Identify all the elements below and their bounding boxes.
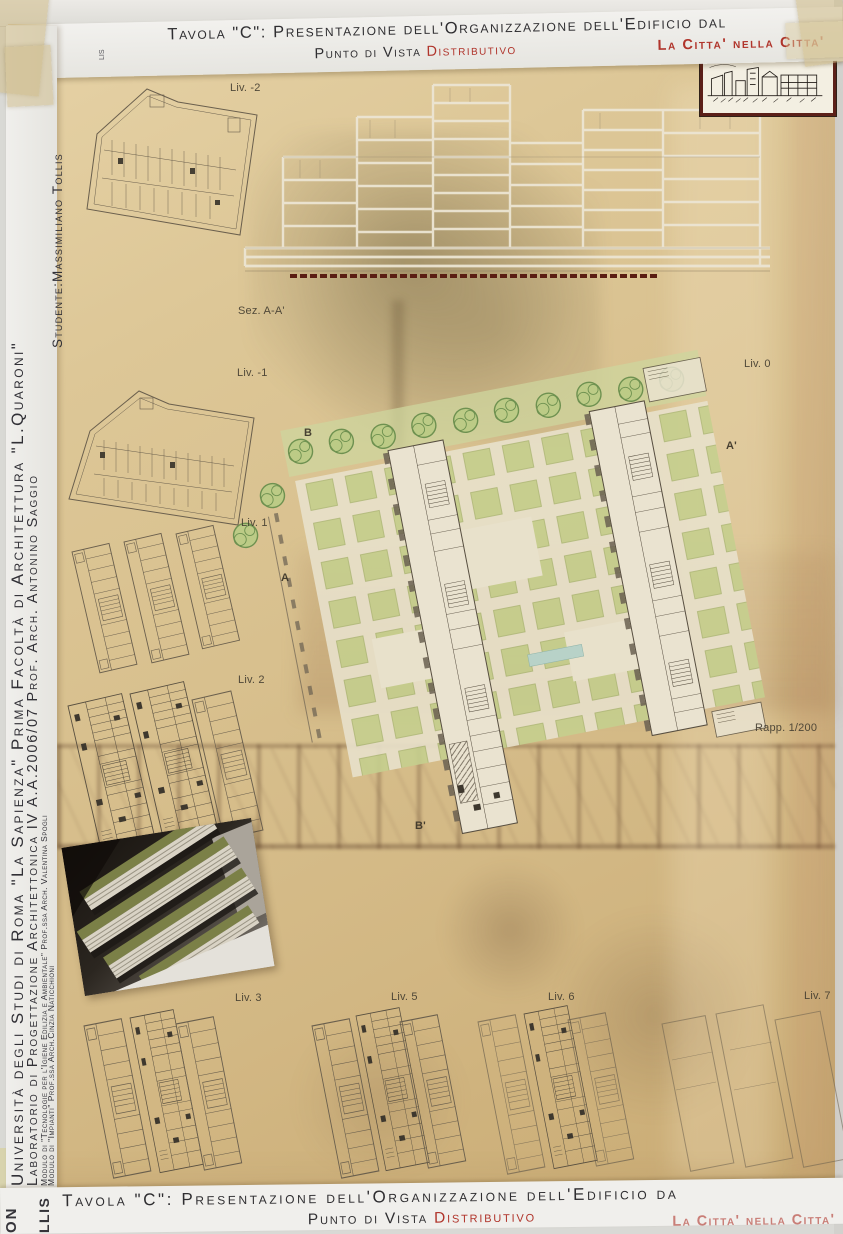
- plans-liv6: [478, 1006, 634, 1175]
- section-marker-b-prime: B': [415, 820, 426, 832]
- label-liv-6: Liv. 6: [548, 991, 575, 1003]
- subtitle-prefix: Punto di Vista: [314, 44, 426, 62]
- section-marker-b: B: [304, 427, 312, 439]
- label-liv-minus2: Liv. -2: [230, 82, 261, 94]
- model-photo-drawing: [61, 818, 274, 996]
- section-drawing: [245, 85, 770, 276]
- label-liv-2: Liv. 2: [238, 674, 265, 686]
- lower-subtitle-accent: Distributivo: [434, 1208, 536, 1226]
- lower-sidebar-fragment: LLIS: [36, 1197, 52, 1233]
- photo-of-presentation-board: Liv. -2 Sez. A-A' Liv. -1 Liv. 0 Liv. 1 …: [0, 0, 843, 1234]
- subtitle-accent: Distributivo: [426, 42, 516, 60]
- label-scale: Rapp. 1/200: [755, 722, 817, 734]
- site-plan-liv0: [215, 350, 780, 866]
- perspective-sketch-thumbnail: [700, 57, 836, 116]
- label-liv-3: Liv. 3: [235, 992, 262, 1004]
- lower-subtitle-prefix: Punto di Vista: [308, 1210, 434, 1229]
- section-marker-a-prime: A': [726, 440, 737, 452]
- lower-board-motto: La Citta' nella Citta': [672, 1212, 835, 1230]
- sidebar-module2-line: Modulo di "Impianti" Prof.ssa Arch.Cinzi…: [46, 965, 56, 1186]
- sketch-drawing: [703, 60, 827, 107]
- plan-liv-minus2: [87, 89, 257, 235]
- label-liv-minus1: Liv. -1: [237, 367, 268, 379]
- label-section: Sez. A-A': [238, 305, 285, 317]
- sidebar-student-line: Studente:Massimiliano Tollis: [50, 153, 65, 348]
- board-drawings-svg: [0, 0, 843, 1234]
- credits-sidebar: Università degli Studi di Roma "La Sapie…: [6, 26, 57, 1188]
- label-liv-5: Liv. 5: [391, 991, 418, 1003]
- tape-piece: [4, 45, 53, 107]
- plans-liv3: [84, 1010, 242, 1179]
- model-photograph: [61, 818, 274, 996]
- plans-liv1: [72, 525, 240, 672]
- section-marker-a: A: [281, 572, 289, 584]
- plan-liv-minus1: [69, 391, 254, 525]
- lower-board-title-strip: Tavola "C": Presentazione dell'Organizza…: [0, 1178, 843, 1234]
- label-liv-7: Liv. 7: [804, 990, 831, 1002]
- plans-liv7: [662, 1005, 843, 1171]
- tape-piece: [785, 21, 843, 59]
- label-liv-1: Liv. 1: [241, 517, 268, 529]
- plans-liv5: [312, 1008, 466, 1179]
- lower-sidebar-fragment: ON: [3, 1207, 20, 1234]
- board-subtitle: Punto di Vista Distributivo: [188, 39, 643, 65]
- stray-sidebar-fragment: lis: [96, 49, 107, 60]
- label-liv-0: Liv. 0: [744, 358, 771, 370]
